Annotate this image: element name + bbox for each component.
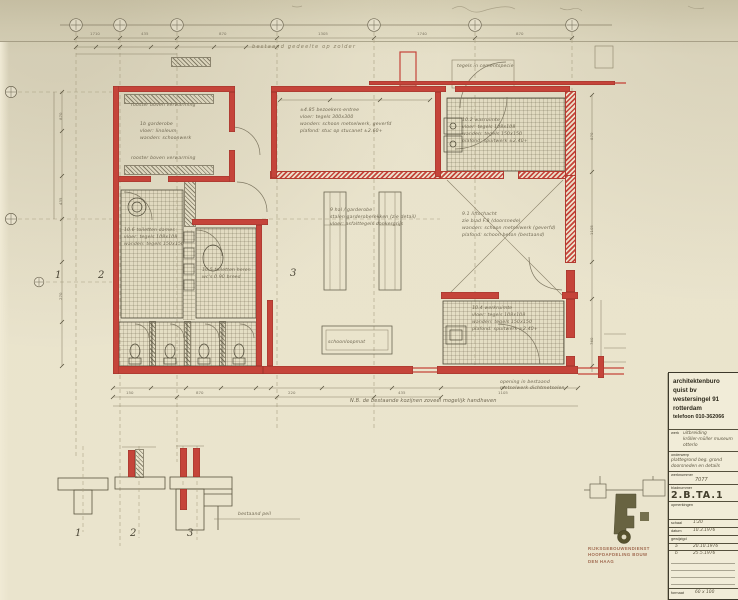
room-note: vloer: tegels 108x108	[462, 125, 515, 132]
divider	[669, 588, 738, 589]
section-marker-2: 2	[98, 270, 104, 281]
room-note: rooster boven verwarming	[131, 103, 196, 110]
wall-segment	[369, 81, 615, 85]
werk-value: uitbreiding	[683, 431, 707, 436]
detail-label-1: 1	[75, 528, 81, 539]
ruled-line	[671, 577, 735, 578]
wall-segment	[113, 86, 119, 374]
room-note: 10.4 werkruimte	[472, 306, 512, 313]
grid-bubble-row	[5, 19, 578, 287]
dim-value: 870	[196, 390, 203, 395]
rev-a: a	[675, 544, 678, 549]
rev-b-date: 25.5.1976	[693, 551, 715, 556]
dim-value: 1740	[417, 31, 427, 36]
detail-sections	[58, 446, 300, 540]
dim-value: 1710	[90, 31, 100, 36]
dim-value: 220	[288, 390, 295, 395]
divider	[669, 471, 738, 472]
wall-segment	[598, 356, 604, 378]
drawing-sheet: bestaand gedeelte op zolder rooster bove…	[0, 0, 738, 600]
room-note: 10.2 wasruimte	[462, 118, 500, 125]
dim-value: 760	[589, 338, 594, 345]
room-note: vloer: tegels 108x108	[124, 235, 177, 242]
onderwerp-label: onderwerp	[671, 453, 689, 457]
wall-segment	[566, 270, 575, 292]
stamp-line: DEN HAAG	[588, 559, 650, 565]
ruled-line	[671, 584, 735, 585]
wall-segment	[256, 225, 262, 366]
wall-segment-hatched	[566, 176, 575, 262]
onderwerp-value: plattegrond beg. grond	[671, 458, 722, 463]
pencil-scribbles	[292, 6, 704, 12]
detail-red-wall	[193, 448, 200, 477]
dim-value: 435	[58, 198, 63, 205]
room-note: 10.6 toiletten dames	[124, 228, 175, 235]
room-note: plafond: stuc op stucanet ±2.60+	[300, 129, 383, 136]
dim-value: 870	[516, 31, 523, 36]
firm-city: rotterdam	[673, 404, 702, 413]
datum-value: 10.3.1976	[693, 528, 715, 533]
rev-b: b	[675, 551, 678, 556]
room-note: vloer: linoleum	[140, 129, 177, 136]
wall-segment-hatched	[566, 92, 575, 176]
wall-segment	[455, 86, 570, 92]
werknummer-label: werknummer	[671, 473, 693, 477]
wall-segment	[562, 292, 578, 299]
divider	[669, 451, 738, 452]
schaal-label: schaal	[671, 521, 682, 525]
firm-phone: telefoon 010-362066	[673, 413, 724, 421]
room-note: 9 hal / garderobe	[330, 208, 372, 215]
ruled-line	[671, 570, 735, 571]
dim-value: 870	[58, 113, 63, 120]
wall-segment	[267, 300, 273, 366]
detail-red-wall	[180, 448, 187, 477]
room-note: plafond: spuitwerk ±2.40+	[472, 327, 538, 334]
wall-segment	[229, 150, 235, 182]
key-plan	[584, 476, 665, 544]
detail-label-3: 3	[187, 528, 193, 539]
wall-segment	[168, 176, 234, 182]
onderwerp-value: doorsneden en details	[671, 464, 720, 469]
room-note: 1b garderobe	[140, 122, 173, 129]
dim-value: 435	[398, 390, 405, 395]
dim-value: 1105	[589, 225, 594, 235]
grid-centerlines	[18, 32, 572, 546]
room-note: stalen garderoberekken (zie detail)	[330, 215, 416, 222]
room-note: vloer: tegels 300x300	[300, 115, 353, 122]
rev-a-date: 20.10.1976	[693, 544, 718, 549]
werk-value: otterlo	[683, 443, 698, 448]
room-note: vloer: tegels 108x108	[472, 313, 525, 320]
datum-label: datum	[671, 529, 682, 533]
divider	[669, 535, 738, 536]
section-marker-1: 1	[55, 270, 61, 281]
section-marker-3: 3	[290, 268, 296, 279]
wall-segment	[113, 366, 263, 374]
room-note: wanden: schoon metselwerk, geverfd	[300, 122, 391, 129]
wall-segment-hatched	[519, 172, 570, 178]
vestibule-note: tegels in cementspecie	[457, 64, 514, 71]
formaat-label: formaat	[671, 591, 684, 595]
detail-red-wall	[128, 450, 135, 477]
bladnummer-value: 2.B.TA.1	[671, 490, 724, 501]
werk-label: werk	[671, 431, 679, 435]
firm-name-2: quist bv	[673, 386, 697, 395]
divider	[669, 519, 738, 520]
header-note: bestaand gedeelte op zolder	[252, 44, 356, 50]
wall-segment	[271, 92, 277, 178]
room-note: wanden: tegels 150x150	[124, 242, 184, 249]
level-note: bestaand peil	[238, 512, 271, 519]
room-note: vloer: asfalttegels donkergrijs	[330, 222, 403, 229]
wall-segment	[437, 366, 578, 374]
wall-segment	[113, 86, 235, 92]
dim-value: 870	[589, 133, 594, 140]
formaat-value: 60 x 100	[695, 590, 714, 595]
dim-value: 870	[219, 31, 226, 36]
wall-segment-hatched	[271, 172, 441, 178]
dim-value: 150	[126, 390, 133, 395]
mat-label: schoonloopmat	[328, 340, 365, 347]
nb-note: N.B. de bestaande kozijnen zoveel mogeli…	[350, 398, 497, 406]
dim-value: 435	[141, 31, 148, 36]
wall-segment-hatched	[441, 172, 503, 178]
title-block: architektenburo quist bv westersingel 91…	[668, 372, 738, 600]
werk-value: kröller-müller museum	[683, 437, 733, 442]
dim-value: 1105	[498, 390, 508, 395]
divider	[669, 501, 738, 502]
wall-segment	[566, 299, 575, 338]
wall-segment	[441, 292, 499, 299]
room-note: 10.5 toiletten heren	[202, 268, 251, 275]
room-note: wanden: schoon metselwerk (geverfd)	[462, 226, 556, 233]
werknummer-value: 7077	[695, 477, 708, 483]
room-note: plafond: spuitwerk ±2.40+	[462, 139, 528, 146]
room-note: ±4.85 bezoekers-entree	[300, 108, 359, 115]
room-note: rooster boven verwarming	[131, 156, 196, 163]
detail-label-2: 2	[130, 528, 136, 539]
wall-segment	[271, 86, 446, 92]
rijksgebouwendienst-stamp: RIJKSGEBOUWENDIENST HOOFDAFDELING BOUW D…	[588, 546, 650, 565]
ruled-line	[671, 563, 735, 564]
dim-value: 270	[58, 293, 63, 300]
divider	[669, 484, 738, 485]
divider	[669, 429, 738, 430]
schaal-value: 1:20	[693, 520, 703, 525]
opmerkingen-label: opmerkingen	[671, 503, 693, 507]
room-note: zie blad F.8 (doorsnede)	[462, 219, 521, 226]
gewijzigd-label: gewijzigd	[671, 537, 687, 541]
wall-segment	[263, 366, 413, 374]
stamp-line: HOOFDAFDELING BOUW	[588, 552, 650, 558]
room-note: wc's 0.90 breed	[202, 275, 241, 282]
firm-name: architektenburo	[673, 377, 720, 386]
pencil-outlines	[119, 46, 626, 374]
room-note: wanden: tegels 150x150	[462, 132, 522, 139]
dim-value: 1305	[318, 31, 328, 36]
firm-address: westersingel 91	[673, 395, 719, 404]
detail-red-wall	[180, 489, 187, 510]
room-note: wanden: tegels 150x150	[472, 320, 532, 327]
wall-segment	[229, 92, 235, 132]
room-note: 9.1 liftschacht	[462, 212, 497, 219]
opening-note: metselwerk dichtmetselen	[500, 386, 565, 393]
room-note: wanden: schoonwerk	[140, 136, 191, 143]
room-note: plafond: schoon beton (bestaand)	[462, 233, 545, 240]
wall-segment	[566, 356, 575, 366]
wall-segment	[435, 92, 441, 177]
